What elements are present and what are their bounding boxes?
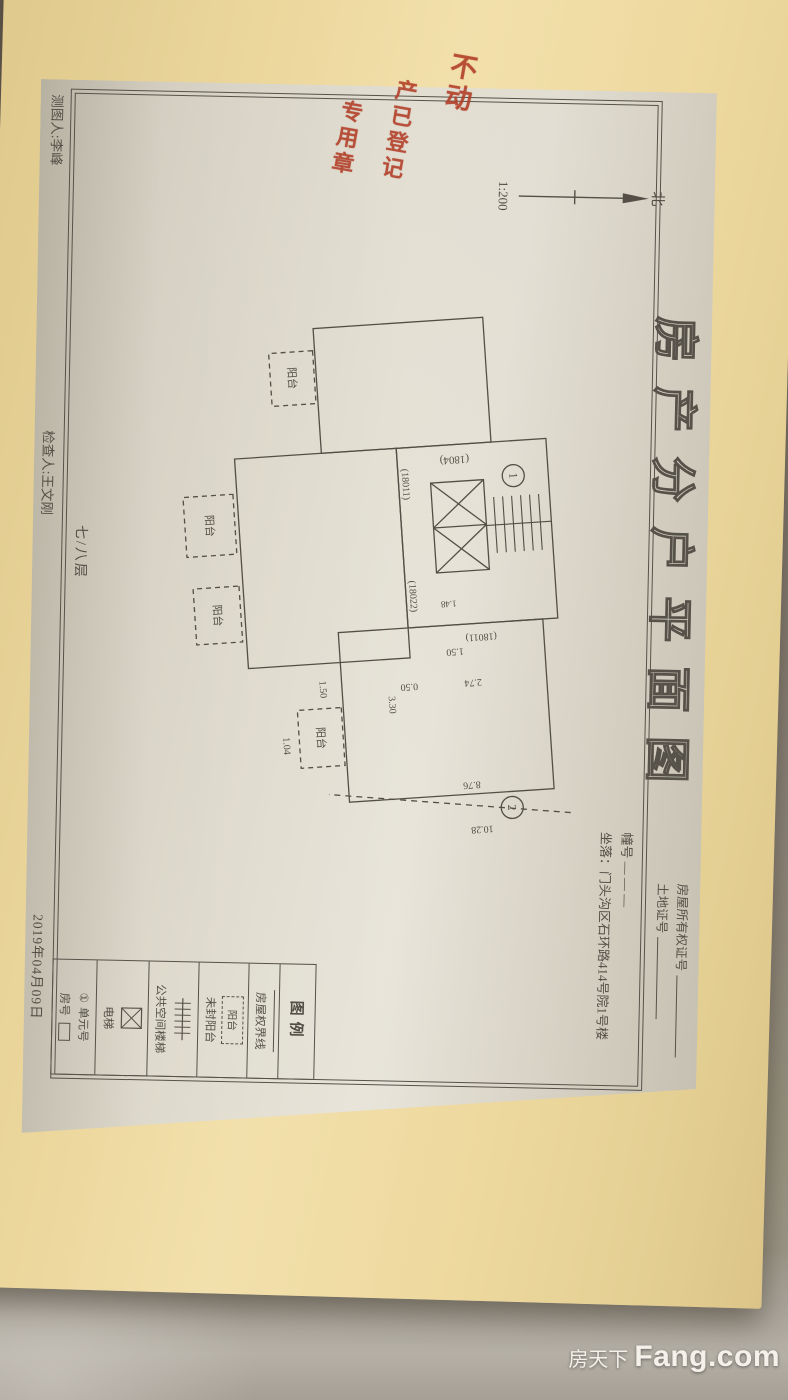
legend-item-stairs: 公共空间楼梯 [147, 962, 199, 1077]
legend-title: 图例 [278, 964, 315, 1079]
dim-148: 1.48 [440, 599, 457, 610]
boundary-dashed-line [329, 779, 571, 829]
legend-open-balcony-label: 未封阳台 [202, 997, 219, 1043]
stamp-text-1: 不动 [435, 49, 484, 117]
solid-line-symbol [271, 990, 275, 1052]
stairs-symbol [484, 493, 554, 553]
balcony-3-label: 阳台 [210, 604, 225, 627]
legend-table: 图例 房屋权界线 阳台 未封阳台 公共空间楼梯 [50, 958, 316, 1080]
legend-item-elevator: 电梯 [95, 960, 149, 1075]
dim-150: 1.50 [446, 645, 464, 657]
room-number-box-icon [58, 1023, 70, 1041]
dashed-rect-symbol: 阳台 [221, 996, 244, 1044]
plan-geometry: 1 2 阳台 阳台 阳台 阳台 (1804) (18011) (18011) (… [172, 314, 571, 853]
dim-876: 8.76 [463, 778, 481, 790]
dim-150b: 1.50 [316, 680, 328, 698]
elevator-mini-icon [119, 1006, 143, 1030]
drafter-name: 测图人:李峰 [47, 94, 68, 166]
balcony-4-label: 阳台 [314, 727, 329, 750]
legend-boundary-label: 房屋权界线 [252, 992, 269, 1050]
unit-1-number: 1 [506, 472, 520, 479]
room-main [235, 448, 411, 668]
red-registration-stamp: 不动 产已登记 专用章 [280, 25, 489, 205]
north-label: 北 [649, 191, 666, 206]
watermark-chinese: 房天下 [568, 1343, 628, 1372]
legend-stairs-label: 公共空间楼梯 [152, 984, 169, 1053]
code-18022: (18022) [406, 580, 419, 612]
watermark-logo: Fang.com [634, 1340, 780, 1374]
room-upper-left [313, 317, 491, 453]
dim-330: 3.30 [386, 696, 398, 714]
code-18011-h: (18011) [399, 468, 412, 500]
legend-item-numbers: ① 单元号 房号 [51, 959, 97, 1074]
legend-room-label: 房号 [57, 993, 73, 1016]
legend-elevator-label: 电梯 [100, 1006, 116, 1029]
legend-item-boundary: 房屋权界线 [247, 964, 280, 1079]
code-18011-v: (18011) [465, 630, 497, 643]
dim-1028: 10.28 [471, 823, 494, 835]
unit-2-number: 2 [505, 804, 519, 811]
elevator-symbol [431, 480, 490, 573]
north-arrow: 北 1:200 [495, 181, 666, 214]
legend-unit-label: 单元号 [75, 1007, 92, 1042]
dim-050: 0.50 [400, 680, 418, 692]
scale-label: 1:200 [495, 181, 511, 211]
document-sheet: 房产分户平面图 房屋所有权证号 土地证号 幢号 — — — 坐落：门头沟区石环路… [19, 79, 717, 1147]
survey-date: 2019年04月09日 [27, 914, 49, 1020]
stairs-mini-icon [171, 996, 194, 1042]
balcony-1-label: 阳台 [285, 367, 300, 390]
legend-item-balcony: 阳台 未封阳台 [197, 963, 249, 1078]
floorplan-document: 房产分户平面图 房屋所有权证号 土地证号 幢号 — — — 坐落：门头沟区石环路… [23, 78, 713, 1148]
checker-name: 检查人:王文刚 [38, 430, 60, 515]
stamp-text-3: 专用章 [323, 97, 368, 179]
fang-watermark: 房天下 Fang.com [568, 1340, 780, 1374]
circled-number-icon: ① [77, 993, 91, 1004]
floor-label: 七/八层 [71, 525, 92, 579]
stamp-text-2: 产已登记 [373, 76, 423, 184]
dim-274: 2.74 [464, 676, 482, 688]
legend-unit-row: ① 单元号 [75, 993, 92, 1042]
dim-104: 1.04 [280, 737, 292, 755]
legend-room-row: 房号 [56, 993, 73, 1041]
balcony-2-label: 阳台 [202, 514, 217, 537]
code-1804: (1804) [439, 453, 469, 467]
